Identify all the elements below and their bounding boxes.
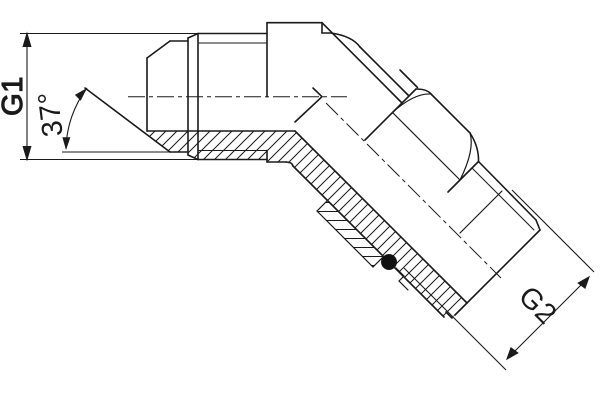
arrowhead-g1-bottom: [23, 147, 31, 160]
dim-g1-label: G1: [0, 76, 29, 116]
dim-angle-label: 37°: [32, 90, 69, 139]
arrowhead-angle-bottom: [62, 137, 71, 151]
engineering-drawing-canvas: G1 37° G2: [0, 0, 600, 400]
elbow-corner: [322, 23, 418, 103]
locknut: [365, 89, 479, 192]
dim-g2-label: G2: [512, 280, 563, 331]
o-ring-seal: [382, 255, 397, 270]
fitting-section-drawing: G1 37° G2: [0, 0, 600, 400]
arrowhead-g1-top: [23, 34, 31, 47]
